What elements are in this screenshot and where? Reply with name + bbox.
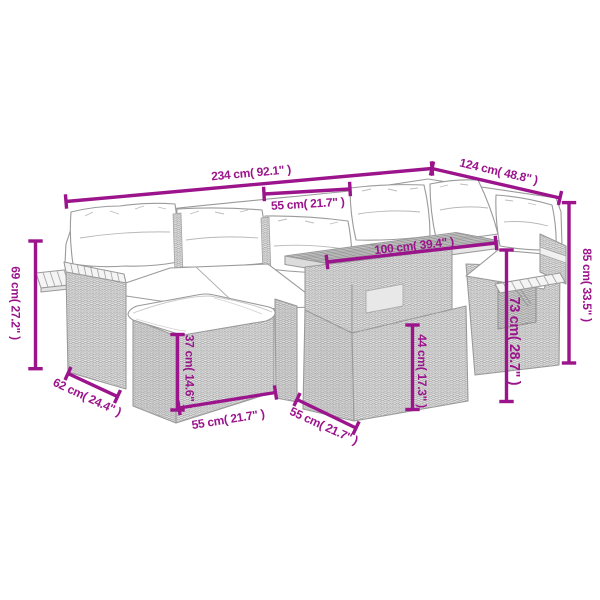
svg-text:44 cm( 17.3" ): 44 cm( 17.3" ) (415, 334, 429, 408)
svg-text:73 cm( 28.7" ): 73 cm( 28.7" ) (506, 297, 522, 386)
svg-text:37 cm( 14.6" ): 37 cm( 14.6" ) (183, 335, 197, 409)
svg-text:85 cm( 33.5" ): 85 cm( 33.5" ) (580, 248, 594, 322)
svg-text:69 cm( 27.2" ): 69 cm( 27.2" ) (9, 266, 23, 340)
